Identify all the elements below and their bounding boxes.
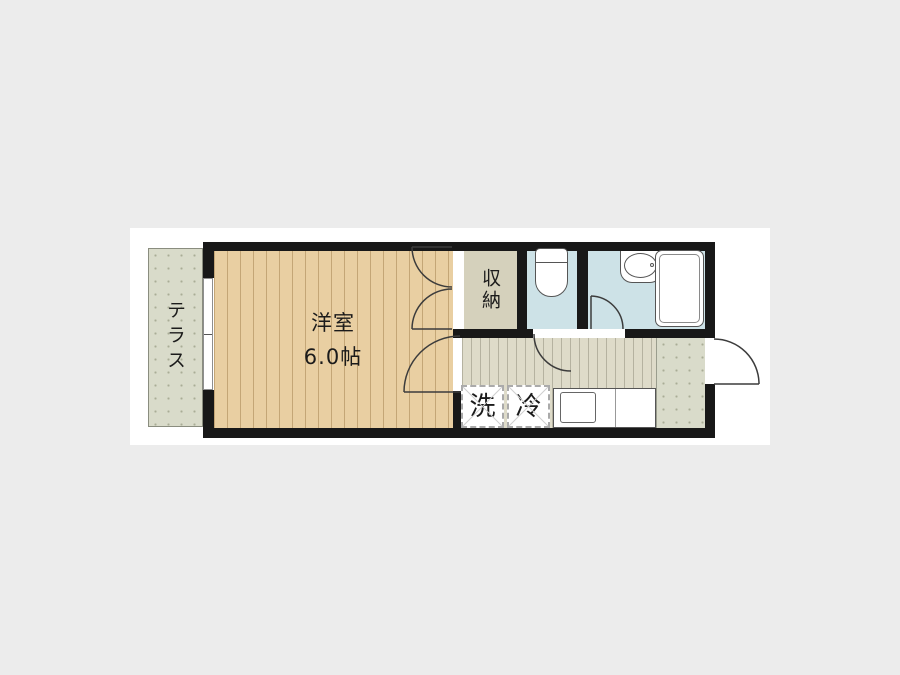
closet-label: 収納 xyxy=(477,268,504,312)
wall-toilet-bath xyxy=(577,242,588,329)
kitchen-sink-icon xyxy=(560,392,596,423)
refrigerator-label: 冷 xyxy=(515,394,541,420)
washer-label: 洗 xyxy=(469,394,495,420)
refrigerator-space-box: 冷 xyxy=(507,385,550,428)
western-room-name: 洋室 xyxy=(233,306,433,340)
washer-space-box: 洗 xyxy=(461,385,504,428)
wall-top xyxy=(203,242,715,251)
room-entrance-genkan xyxy=(656,338,705,428)
bathtub-icon xyxy=(655,250,704,327)
room-closet: 収納 xyxy=(464,251,517,329)
bathtub-inner xyxy=(659,254,700,323)
washbasin-drain xyxy=(650,263,654,267)
terrace-label: テラス xyxy=(162,300,189,375)
window-icon xyxy=(203,278,213,390)
wall-mid-left xyxy=(453,329,533,338)
western-room-size: 6.0帖 xyxy=(233,340,433,374)
wall-mid-right xyxy=(625,329,715,338)
entrance-door-opening xyxy=(705,338,715,384)
toilet-icon xyxy=(535,248,568,297)
floor-plan: テラス 収納 洗 冷 xyxy=(0,0,900,675)
kitchen-counter xyxy=(553,388,656,428)
kitchen-counter-divider xyxy=(615,389,616,427)
room-terrace: テラス xyxy=(148,248,203,427)
western-room-label: 洋室 6.0帖 xyxy=(233,306,433,374)
toilet-tank xyxy=(536,249,567,263)
wall-right-upper xyxy=(705,242,715,338)
wall-right-lower xyxy=(705,384,715,438)
wall-closet-toilet xyxy=(517,242,527,329)
window-sash-divider xyxy=(204,334,212,335)
wall-left-lower xyxy=(203,390,214,438)
wall-bottom xyxy=(203,428,715,438)
wall-left-upper xyxy=(203,242,214,278)
